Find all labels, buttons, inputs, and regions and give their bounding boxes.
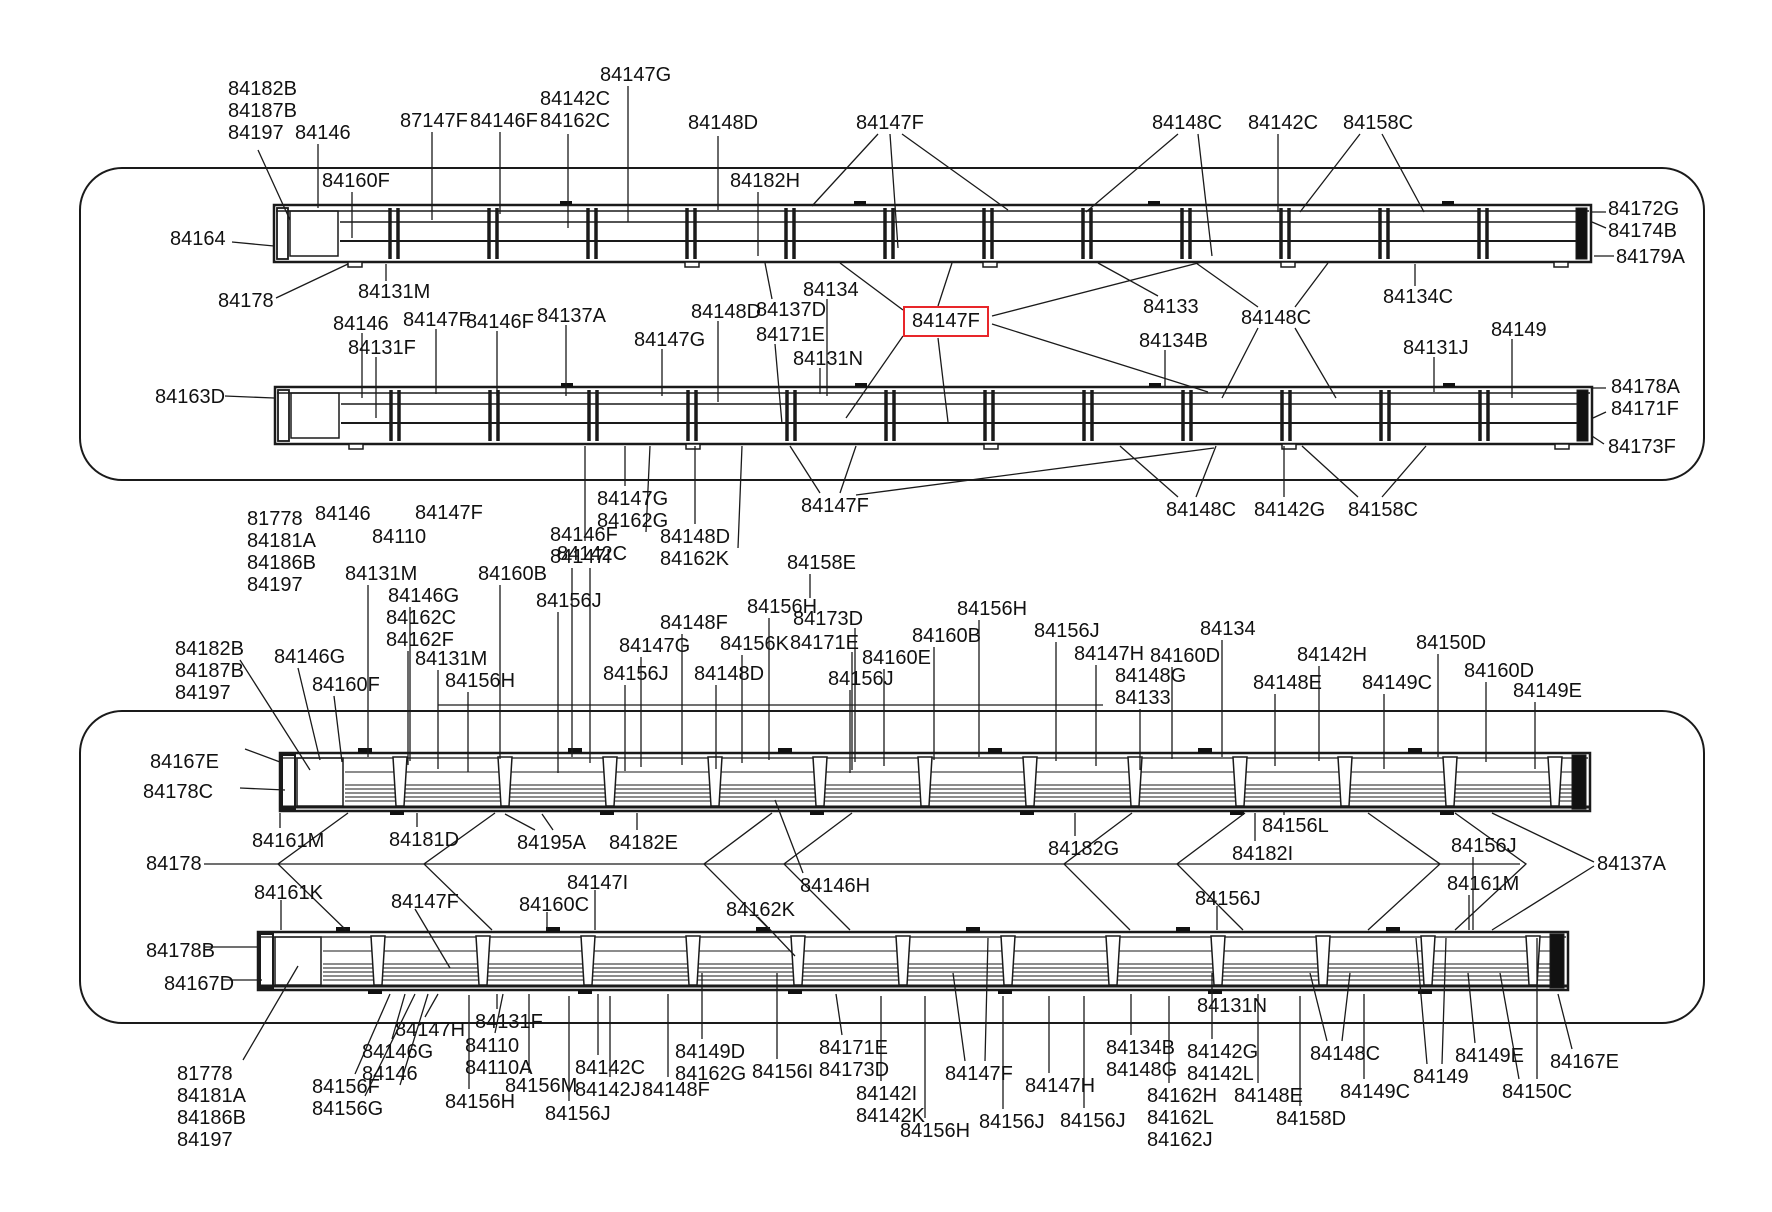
part-label: 84149 (1491, 319, 1547, 341)
part-label: 84146 (295, 122, 351, 144)
part-label: 84148C (1241, 307, 1311, 329)
part-label: 84156H (900, 1120, 970, 1142)
part-label: 84150C (1502, 1081, 1572, 1103)
part-label: 84147F (801, 495, 869, 517)
part-label: 84148D 84162K (660, 526, 730, 570)
part-label: 84146F (470, 110, 538, 132)
part-label: 84163D (155, 386, 225, 408)
part-label: 84156H (445, 670, 515, 692)
part-label: 84148E (1234, 1085, 1303, 1107)
part-label: 84156J (1060, 1110, 1126, 1132)
part-label: 84146H (800, 875, 870, 897)
part-label: 84182B 84187B 84197 (175, 638, 244, 704)
part-label: 84131N (1197, 995, 1267, 1017)
part-label: 84156J (545, 1103, 611, 1125)
part-label: 84182G (1048, 838, 1119, 860)
part-label: 84147H (1025, 1075, 1095, 1097)
part-label: 84142C 84162C (540, 88, 610, 132)
part-label: 84147F (945, 1063, 1013, 1085)
part-label: 84148G 84133 (1115, 665, 1186, 709)
part-label: 84149E (1513, 680, 1582, 702)
part-label: 84167E (150, 751, 219, 773)
part-label: 84182B 84187B 84197 (228, 78, 297, 144)
part-label: 84147G (600, 64, 671, 86)
part-label: 84148E (1253, 672, 1322, 694)
part-label: 84164 (170, 228, 226, 250)
part-label: 84156H (957, 598, 1027, 620)
part-label: 84161K (254, 882, 323, 904)
part-label: 84161M (1447, 873, 1519, 895)
labels-layer: 84147G84142C 84162C87147F84146F84148D841… (0, 0, 1772, 1212)
part-label: 84160B (912, 625, 981, 647)
part-label: 84156J (1034, 620, 1100, 642)
part-label: 84156H (445, 1091, 515, 1113)
part-label: 84156L (1262, 815, 1329, 837)
part-label: 84142G 84142L (1187, 1041, 1258, 1085)
part-label: 84149D 84162G (675, 1041, 746, 1085)
part-label: 84134 (1200, 618, 1256, 640)
part-label: 84156J (603, 663, 669, 685)
part-label: 84131M (358, 281, 430, 303)
part-label: 84147H (395, 1019, 465, 1041)
part-label: 84195A (517, 832, 586, 854)
part-label: 84147G (634, 329, 705, 351)
part-label: 84149C (1362, 672, 1432, 694)
part-label: 84137A (537, 305, 606, 327)
part-label: 84147F (391, 891, 459, 913)
part-label: 84178 (218, 290, 274, 312)
part-label: 84148C (1152, 112, 1222, 134)
part-label: 84178C (143, 781, 213, 803)
part-label: 84182E (609, 832, 678, 854)
parts-diagram: 84147G84142C 84162C87147F84146F84148D841… (0, 0, 1772, 1212)
part-label: 84160D (1464, 660, 1534, 682)
part-label: 84147I (567, 872, 628, 894)
part-label: 84131F (348, 337, 416, 359)
part-label: 84134B 84148G (1106, 1037, 1177, 1081)
part-label: 84131M (415, 648, 487, 670)
part-label: 84178B (146, 940, 215, 962)
part-label: 84182H (730, 170, 800, 192)
part-label: 84156J (1451, 835, 1517, 857)
part-label: 84160F (322, 170, 390, 192)
part-label: 87147F (400, 110, 468, 132)
part-label: 84178A 84171F (1611, 376, 1680, 420)
part-label: 84160F (312, 674, 380, 696)
part-label: 81778 84181A 84186B 84197 (247, 508, 316, 596)
part-label: 84134C (1383, 286, 1453, 308)
part-label: 84178 (146, 853, 202, 875)
part-label: 84158C (1343, 112, 1413, 134)
part-label: 84182I (1232, 843, 1293, 865)
part-label: 84162C 84162F (386, 607, 456, 651)
part-label: 84156J (828, 668, 894, 690)
part-label: 84148C (1166, 499, 1236, 521)
part-label: 84134B (1139, 330, 1208, 352)
part-label: 84160E (862, 647, 931, 669)
part-label: 84148D (694, 663, 764, 685)
part-label: 84147H (1074, 643, 1144, 665)
part-label: 84147F (403, 309, 471, 331)
part-label: 84149 (1413, 1066, 1469, 1088)
part-label: 81778 84181A 84186B 84197 (177, 1063, 246, 1151)
part-label: 84131J (1403, 337, 1469, 359)
part-label: 84156J (1195, 888, 1261, 910)
part-label: 84160C (519, 894, 589, 916)
part-label: 84156I (752, 1061, 813, 1083)
part-label: 84148D (691, 301, 761, 323)
part-label: 84142H (1297, 644, 1367, 666)
part-label: 84147F (856, 112, 924, 134)
part-label: 84146F (466, 311, 534, 333)
part-label: 84156J (979, 1111, 1045, 1133)
part-label: 84173D (793, 608, 863, 630)
part-label: 84146G (388, 585, 459, 607)
part-label: 84142C (575, 1057, 645, 1079)
part-label: 84110 84110A (465, 1035, 532, 1079)
part-label-highlighted: 84147F (903, 306, 989, 337)
part-label: 84131N (793, 348, 863, 370)
part-label: 84142G (1254, 499, 1325, 521)
part-label: 84172G 84174B (1608, 198, 1679, 242)
part-label: 84181D (389, 829, 459, 851)
part-label: 84148C (1310, 1043, 1380, 1065)
part-label: 84149C (1340, 1081, 1410, 1103)
part-label: 84160B (478, 563, 547, 585)
part-label: 84146G (274, 646, 345, 668)
part-label: 84148D (688, 112, 758, 134)
part-label: 84173F (1608, 436, 1676, 458)
part-label: 84171E 84173D (819, 1037, 889, 1081)
part-label: 84110 (372, 526, 426, 548)
part-label: 84150D (1416, 632, 1486, 654)
part-label: 84149E (1455, 1045, 1524, 1067)
part-label: 84156M (505, 1075, 577, 1097)
part-label: 84148F (660, 612, 728, 634)
part-label: 84137D (756, 299, 826, 321)
part-label: 84158D (1276, 1108, 1346, 1130)
part-label: 84134 (803, 279, 859, 301)
part-label: 84137A (1597, 853, 1666, 875)
part-label: 84162K (726, 899, 795, 921)
part-label: 84162H 84162L 84162J (1147, 1085, 1217, 1151)
part-label: 84142C (1248, 112, 1318, 134)
part-label: 84171E (756, 324, 825, 346)
part-label: 84179A (1616, 246, 1685, 268)
part-label: 84142J (575, 1079, 641, 1101)
part-label: 84156J (536, 590, 602, 612)
part-label: 84158C (1348, 499, 1418, 521)
part-label: 84146 (315, 503, 371, 525)
part-label: 84146F 84147I (550, 524, 618, 568)
part-label: 84158E (787, 552, 856, 574)
part-label: 84146 (333, 313, 389, 335)
part-label: 84156K (720, 633, 789, 655)
part-label: 84147F (415, 502, 483, 524)
part-label: 84131F (475, 1011, 543, 1033)
part-label: 84167D (164, 973, 234, 995)
part-label: 84161M (252, 830, 324, 852)
part-label: 84146G 84146 (362, 1041, 433, 1085)
part-label: 84167E (1550, 1051, 1619, 1073)
part-label: 84160D (1150, 645, 1220, 667)
part-label: 84171E (790, 632, 859, 654)
part-label: 84131M (345, 563, 417, 585)
part-label: 84147G (619, 635, 690, 657)
part-label: 84133 (1143, 296, 1199, 318)
